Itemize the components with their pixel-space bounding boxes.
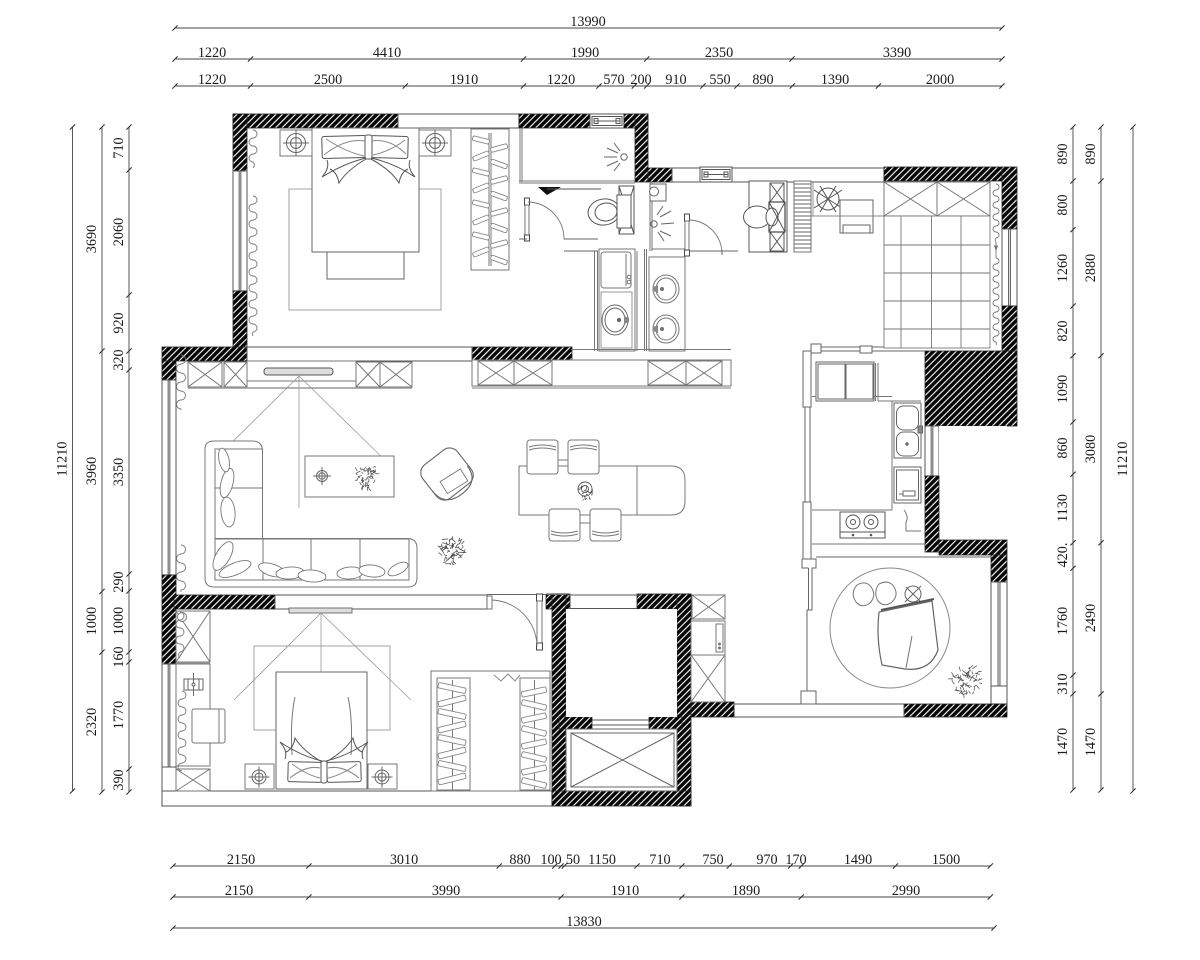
svg-text:2500: 2500 (314, 72, 342, 88)
svg-text:2990: 2990 (892, 883, 920, 899)
svg-text:170: 170 (785, 852, 806, 868)
svg-text:1910: 1910 (450, 72, 478, 88)
svg-text:2880: 2880 (1083, 254, 1099, 282)
svg-text:2490: 2490 (1083, 604, 1099, 632)
svg-text:820: 820 (1055, 320, 1071, 341)
svg-text:13990: 13990 (570, 14, 605, 30)
svg-text:3990: 3990 (432, 883, 460, 899)
svg-text:1260: 1260 (1055, 254, 1071, 282)
svg-text:800: 800 (1055, 194, 1071, 215)
svg-text:1760: 1760 (1055, 607, 1071, 635)
svg-text:1500: 1500 (932, 852, 960, 868)
svg-text:3690: 3690 (84, 225, 100, 253)
svg-text:1220: 1220 (198, 72, 226, 88)
svg-text:13830: 13830 (566, 914, 601, 930)
svg-text:710: 710 (649, 852, 670, 868)
svg-text:1000: 1000 (84, 607, 100, 635)
svg-text:3010: 3010 (390, 852, 418, 868)
svg-text:2000: 2000 (926, 72, 954, 88)
svg-text:1470: 1470 (1055, 728, 1071, 756)
svg-text:880: 880 (509, 852, 530, 868)
svg-text:1390: 1390 (821, 72, 849, 88)
svg-text:160: 160 (111, 646, 127, 667)
svg-text:310: 310 (1055, 673, 1071, 694)
svg-text:1990: 1990 (571, 45, 599, 61)
svg-text:420.: 420. (1055, 543, 1071, 568)
svg-text:1910: 1910 (611, 883, 639, 899)
svg-text:710: 710 (111, 137, 127, 158)
svg-text:2350: 2350 (705, 45, 733, 61)
svg-text:1000: 1000 (111, 607, 127, 635)
svg-text:50: 50 (566, 852, 580, 868)
svg-text:3350: 3350 (111, 458, 127, 486)
svg-text:1130: 1130 (1055, 494, 1071, 522)
svg-text:890: 890 (752, 72, 773, 88)
svg-text:290: 290 (111, 571, 127, 592)
svg-text:1890: 1890 (732, 883, 760, 899)
svg-text:11210: 11210 (1115, 442, 1131, 477)
svg-text:920: 920 (111, 312, 127, 333)
svg-text:550: 550 (709, 72, 730, 88)
svg-text:1150: 1150 (588, 852, 616, 868)
svg-text:2320: 2320 (84, 708, 100, 736)
svg-text:890: 890 (1083, 143, 1099, 164)
svg-text:2150: 2150 (227, 852, 255, 868)
svg-text:860: 860 (1055, 437, 1071, 458)
svg-text:1220: 1220 (198, 45, 226, 61)
svg-text:910: 910 (665, 72, 686, 88)
svg-text:390: 390 (111, 769, 127, 790)
svg-text:1220: 1220 (547, 72, 575, 88)
svg-text:11210: 11210 (55, 442, 71, 477)
svg-text:3390: 3390 (883, 45, 911, 61)
svg-text:100: 100 (540, 852, 561, 868)
svg-text:1770: 1770 (111, 701, 127, 729)
svg-text:750: 750 (702, 852, 723, 868)
svg-text:1090: 1090 (1055, 375, 1071, 403)
svg-text:570: 570 (603, 72, 624, 88)
svg-text:1490: 1490 (844, 852, 872, 868)
svg-text:1470: 1470 (1083, 728, 1099, 756)
svg-text:3080: 3080 (1083, 435, 1099, 463)
svg-text:970: 970 (756, 852, 777, 868)
svg-text:2060: 2060 (111, 218, 127, 246)
svg-text:3960: 3960 (84, 457, 100, 485)
svg-text:890: 890 (1055, 143, 1071, 164)
svg-text:200: 200 (630, 72, 651, 88)
svg-text:320: 320 (111, 349, 127, 370)
svg-text:2150: 2150 (225, 883, 253, 899)
svg-text:4410: 4410 (373, 45, 401, 61)
